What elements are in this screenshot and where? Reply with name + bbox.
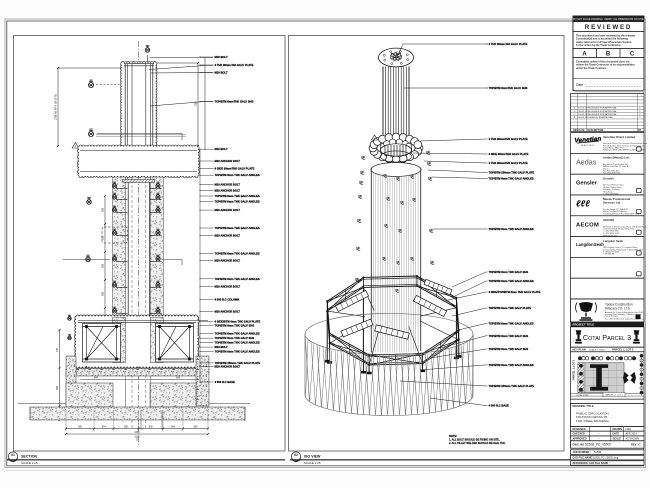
svg-text:DESIGNED: DESIGNED	[573, 428, 586, 431]
svg-text:KEY PLAN: KEY PLAN	[573, 348, 586, 352]
svg-text:DESCRIPTION: DESCRIPTION	[588, 130, 604, 132]
svg-text:TOP/BTM 6mm THK GALV ANGLES: TOP/BTM 6mm THK GALV ANGLES	[215, 277, 260, 281]
svg-text:1788 (VERIFY ON SITE): 1788 (VERIFY ON SITE)	[54, 94, 57, 121]
svg-text:AS SHOWN: AS SHOWN	[626, 438, 640, 441]
svg-text:4 SIDE/BTM 6mm THK GALV PLATE: 4 SIDE/BTM 6mm THK GALV PLATE	[215, 320, 261, 324]
svg-text:Gensler: Gensler	[576, 181, 598, 187]
svg-text:500: 500	[102, 291, 105, 296]
svg-text:2150: 2150	[134, 432, 140, 434]
svg-text:02: 02	[294, 453, 298, 457]
svg-text:5150B_PC_05000: 5150B_PC_05000	[585, 443, 611, 447]
svg-text:DATE: DATE	[579, 129, 586, 132]
svg-text:under the Trade Contract.: under the Trade Contract.	[576, 67, 607, 70]
svg-text:4 500 R.C BASE: 4 500 R.C BASE	[489, 404, 510, 408]
svg-text:M10 BOLT: M10 BOLT	[215, 55, 228, 59]
svg-text:5.4 for action by the Trade Co: 5.4 for action by the Trade Contractor.	[576, 44, 621, 47]
svg-text:DRAWING TITLE: DRAWING TITLE	[573, 404, 594, 408]
svg-text:M10 BOLT: M10 BOLT	[215, 345, 228, 349]
svg-text:TOP/BTM 6mm THK GALV ANGLES: TOP/BTM 6mm THK GALV ANGLES	[489, 227, 534, 231]
svg-text:BY: BY	[638, 130, 642, 132]
svg-text:APPROVED: APPROVED	[573, 438, 587, 441]
svg-text:CHECKED: CHECKED	[573, 433, 586, 436]
svg-text:REV: REV	[631, 443, 637, 447]
svg-text:DO NOT SCALE DRAWING. VERIFY A: DO NOT SCALE DRAWING. VERIFY ALL DIMENSI…	[573, 18, 645, 21]
svg-text:5150B: 5150B	[594, 451, 602, 454]
svg-text:TOP/BTM 6mm THK GALV PLATE: TOP/BTM 6mm THK GALV PLATE	[489, 306, 532, 310]
svg-text:RE-ISSUED FOR APPROVAL: RE-ISSUED FOR APPROVAL	[588, 113, 618, 116]
svg-text:SCALE 1:25: SCALE 1:25	[304, 461, 321, 465]
svg-text:TOP/BTM 6mm THK GALV SHS: TOP/BTM 6mm THK GALV SHS	[215, 324, 255, 328]
svg-text:Aedas (Macau) Ltd.: Aedas (Macau) Ltd.	[603, 156, 630, 160]
svg-text:Services Ltd.: Services Ltd.	[603, 201, 621, 205]
svg-text:RE-ISSUED FOR APPROVAL: RE-ISSUED FOR APPROVAL	[588, 110, 618, 113]
svg-text:4 THK 90mm DIA GALV PLATE: 4 THK 90mm DIA GALV PLATE	[489, 42, 528, 46]
svg-text:4 500 R.C BASE: 4 500 R.C BASE	[215, 380, 236, 384]
svg-text:TOP/BTM 6mm THK GALV ANGLES: TOP/BTM 6mm THK GALV ANGLES	[215, 341, 260, 345]
svg-text:01: 01	[11, 453, 15, 457]
svg-text:4 SIDE 90mmTHK GALV PLATE: 4 SIDE 90mmTHK GALV PLATE	[215, 167, 255, 171]
svg-text:TOP/BTM 6mm THK GALV ANGLES: TOP/BTM 6mm THK GALV ANGLES	[489, 322, 534, 326]
svg-text:M10 ANCHOR BOLT: M10 ANCHOR BOLT	[215, 188, 241, 192]
svg-text:SCALE 1:17500: SCALE 1:17500	[589, 349, 605, 352]
svg-text:TOP/BTM 6mm THK GALV ANGLES: TOP/BTM 6mm THK GALV ANGLES	[215, 226, 260, 230]
svg-text:MACAO: MACAO	[581, 144, 595, 147]
svg-text:DWG. NO: DWG. NO	[573, 443, 585, 447]
svg-text:B: B	[606, 52, 611, 58]
svg-text:(Macau) CO. LTD.: (Macau) CO. LTD.	[605, 307, 631, 311]
svg-text:M10 ANCHOR BOLT: M10 ANCHOR BOLT	[215, 365, 241, 369]
svg-text:TOP/BTM 6mm THK GALV SHS: TOP/BTM 6mm THK GALV SHS	[489, 270, 529, 274]
svg-text:5150B_PC_05000.dwg: 5150B_PC_05000.dwg	[593, 457, 619, 460]
svg-text:TOP/BTM 6mm THK GALV ANGLES: TOP/BTM 6mm THK GALV ANGLES	[215, 350, 260, 354]
svg-text:COTAI STRIP: COTAI STRIP	[576, 394, 589, 397]
svg-text:M10 ANCHOR BOLT: M10 ANCHOR BOLT	[215, 159, 241, 163]
svg-text:500: 500	[102, 263, 105, 268]
svg-text:3150: 3150	[134, 437, 140, 439]
svg-text:TOP/BTM 6mm THK GALV ANGLES: TOP/BTM 6mm THK GALV ANGLES	[489, 363, 534, 367]
svg-text:500: 500	[102, 207, 105, 212]
svg-text:TOP/BTM 150mm THK GALV PLATE: TOP/BTM 150mm THK GALV PLATE	[489, 171, 535, 175]
svg-text:DRAWN: DRAWN	[613, 428, 623, 431]
svg-text:500: 500	[56, 385, 59, 390]
svg-text:M10 ANCHOR BOLT: M10 ANCHOR BOLT	[215, 259, 241, 263]
svg-text:M10 ANCHOR BOLT: M10 ANCHOR BOLT	[215, 183, 241, 187]
svg-text:M10 ANCHOR BOLT: M10 ANCHOR BOLT	[215, 310, 241, 314]
svg-text:TOP/BTM 6mm THK GALV SHS: TOP/BTM 6mm THK GALV SHS	[489, 347, 529, 351]
svg-text:TOP/BTM 6mm THK GALV SHS: TOP/BTM 6mm THK GALV SHS	[489, 334, 529, 338]
svg-text:REVIEWED: REVIEWED	[585, 24, 632, 31]
svg-text:PROJECT TITLE: PROJECT TITLE	[573, 323, 595, 327]
svg-text:DATE: DATE	[613, 433, 620, 436]
svg-text:TOP/BTM 150mm THK GALV PLATE: TOP/BTM 150mm THK GALV PLATE	[489, 384, 535, 388]
svg-text:500: 500	[102, 235, 105, 240]
svg-text:REFERENCE CAD FILE NAME :: REFERENCE CAD FILE NAME :	[573, 462, 610, 465]
svg-text:PARCEL 1, LOT 2: PARCEL 1, LOT 2	[612, 348, 634, 352]
svg-text:M10 BOLT: M10 BOLT	[215, 147, 228, 151]
svg-text:4 SIDE/TOP/BTM 6mm THK GALV PL: 4 SIDE/TOP/BTM 6mm THK GALV PLATE	[489, 290, 541, 294]
svg-text:SECTION: SECTION	[21, 455, 37, 459]
svg-text:TOP/BTM 6mm THK GALV ANGLES: TOP/BTM 6mm THK GALV ANGLES	[489, 279, 534, 283]
svg-text:2. ALL FILLET WELDED SHOULD BE: 2. ALL FILLET WELDED SHOULD BE 3mm THK.	[449, 442, 506, 445]
svg-text:Langdon Seah: Langdon Seah	[603, 239, 623, 243]
svg-text:TOP/BTM 6mm THK GALV ANGLES: TOP/BTM 6mm THK GALV ANGLES	[215, 200, 260, 204]
svg-text:C: C	[630, 52, 635, 58]
svg-text:4 THK 90mmTHK GALV PLATE: 4 THK 90mmTHK GALV PLATE	[489, 137, 528, 141]
svg-text:ℓℓℓ: ℓℓℓ	[576, 199, 590, 209]
svg-text:TOP/BTM 6mm THK GALV ANGLES: TOP/BTM 6mm THK GALV ANGLES	[215, 332, 260, 336]
svg-text:TOP/BTM 6mm THK GALV ANGLES: TOP/BTM 6mm THK GALV ANGLES	[489, 177, 534, 181]
svg-text:Gensler: Gensler	[603, 176, 615, 180]
svg-text:TOP/BTM 6mm THK GALV ANGLES: TOP/BTM 6mm THK GALV ANGLES	[215, 173, 260, 177]
svg-text:ISO VIEW: ISO VIEW	[304, 455, 321, 459]
svg-text:TOP/BTM 6mm THK GALV ANGLES: TOP/BTM 6mm THK GALV ANGLES	[215, 194, 260, 198]
svg-text:PARCEL 1, LOT 3: PARCEL 1, LOT 3	[573, 359, 576, 379]
svg-text:APR 2015: APR 2015	[626, 433, 638, 436]
svg-text:779: 779	[56, 347, 59, 352]
svg-text:AECOM: AECOM	[603, 218, 614, 222]
svg-text:TOP/BTM 6mm THK GALV ANGLES: TOP/BTM 6mm THK GALV ANGLES	[215, 252, 260, 256]
svg-text:4 500 R.C COLUMN: 4 500 R.C COLUMN	[215, 297, 240, 301]
svg-text:M10 ANCHOR BOLT: M10 ANCHOR BOLT	[215, 285, 241, 289]
svg-text:Tel: (853) 2878 3125 Fax: (8: Tel: (853) 2878 3125 Fax: (853) 2878 312…	[603, 213, 639, 215]
svg-text:15-03-15: 15-03-15	[578, 114, 588, 116]
svg-text:RE-ISSUED FOR APPROVAL: RE-ISSUED FOR APPROVAL	[588, 107, 618, 110]
svg-text:TOP/BTM 6mmTHK GALV SHS: TOP/BTM 6mmTHK GALV SHS	[215, 100, 254, 104]
svg-text:4 THK 90mm DIA GALV PLATE: 4 THK 90mm DIA GALV PLATE	[215, 63, 254, 67]
svg-text:TOP/BTM 150mm THK GALV PLATE: TOP/BTM 150mm THK GALV PLATE	[215, 361, 261, 365]
svg-text:LangdonSeah: LangdonSeah	[576, 242, 604, 247]
svg-text:AECOM: AECOM	[576, 222, 599, 228]
svg-text:Venetian Orient Limited: Venetian Orient Limited	[603, 135, 636, 139]
svg-text:CAD FILE NAME :: CAD FILE NAME :	[573, 457, 594, 460]
svg-text:LWO: LWO	[626, 428, 632, 431]
svg-text:Aedas: Aedas	[576, 157, 597, 166]
svg-text:4 THK 90mmTHK GALV PLATE: 4 THK 90mmTHK GALV PLATE	[489, 161, 528, 165]
svg-text:10-04-15: 10-04-15	[578, 108, 588, 110]
svg-text:JOB NUMBER :: JOB NUMBER :	[573, 451, 592, 454]
svg-text:ISSUED FOR APPROVAL: ISSUED FOR APPROVAL	[588, 116, 614, 119]
svg-text:FOR STEEL DRAWING: FOR STEEL DRAWING	[576, 419, 609, 423]
svg-text:SCALE 1:25: SCALE 1:25	[21, 461, 38, 465]
svg-text:SCALE: SCALE	[613, 438, 622, 441]
svg-text:Date :: Date :	[576, 83, 585, 87]
svg-text:T 38 3800 88: T 38 3800 88	[603, 254, 614, 256]
svg-text:PARCEL 2, LOT 1: PARCEL 2, LOT 1	[605, 394, 623, 397]
svg-text:28-03-15: 28-03-15	[578, 111, 588, 113]
svg-text:M10 ANCHOR BOLT: M10 ANCHOR BOLT	[215, 208, 241, 212]
svg-text:A: A	[582, 52, 587, 58]
svg-text:02-03-15: 02-03-15	[578, 117, 588, 119]
svg-text:NOTE:: NOTE:	[449, 434, 457, 438]
svg-text:4 SIDE 90mmTHK GALV PLATE: 4 SIDE 90mmTHK GALV PLATE	[489, 152, 529, 156]
svg-text:TOP/BTM 6mmTHK GALV SHS: TOP/BTM 6mmTHK GALV SHS	[489, 86, 528, 90]
svg-text:1788: 1788	[194, 101, 197, 107]
svg-text:TOP/BTM 6mm THK GALV SHS: TOP/BTM 6mm THK GALV SHS	[215, 336, 255, 340]
svg-text:M10 ANCHOR BOLT: M10 ANCHOR BOLT	[215, 234, 241, 238]
svg-text:M10 BOLT: M10 BOLT	[215, 71, 228, 75]
